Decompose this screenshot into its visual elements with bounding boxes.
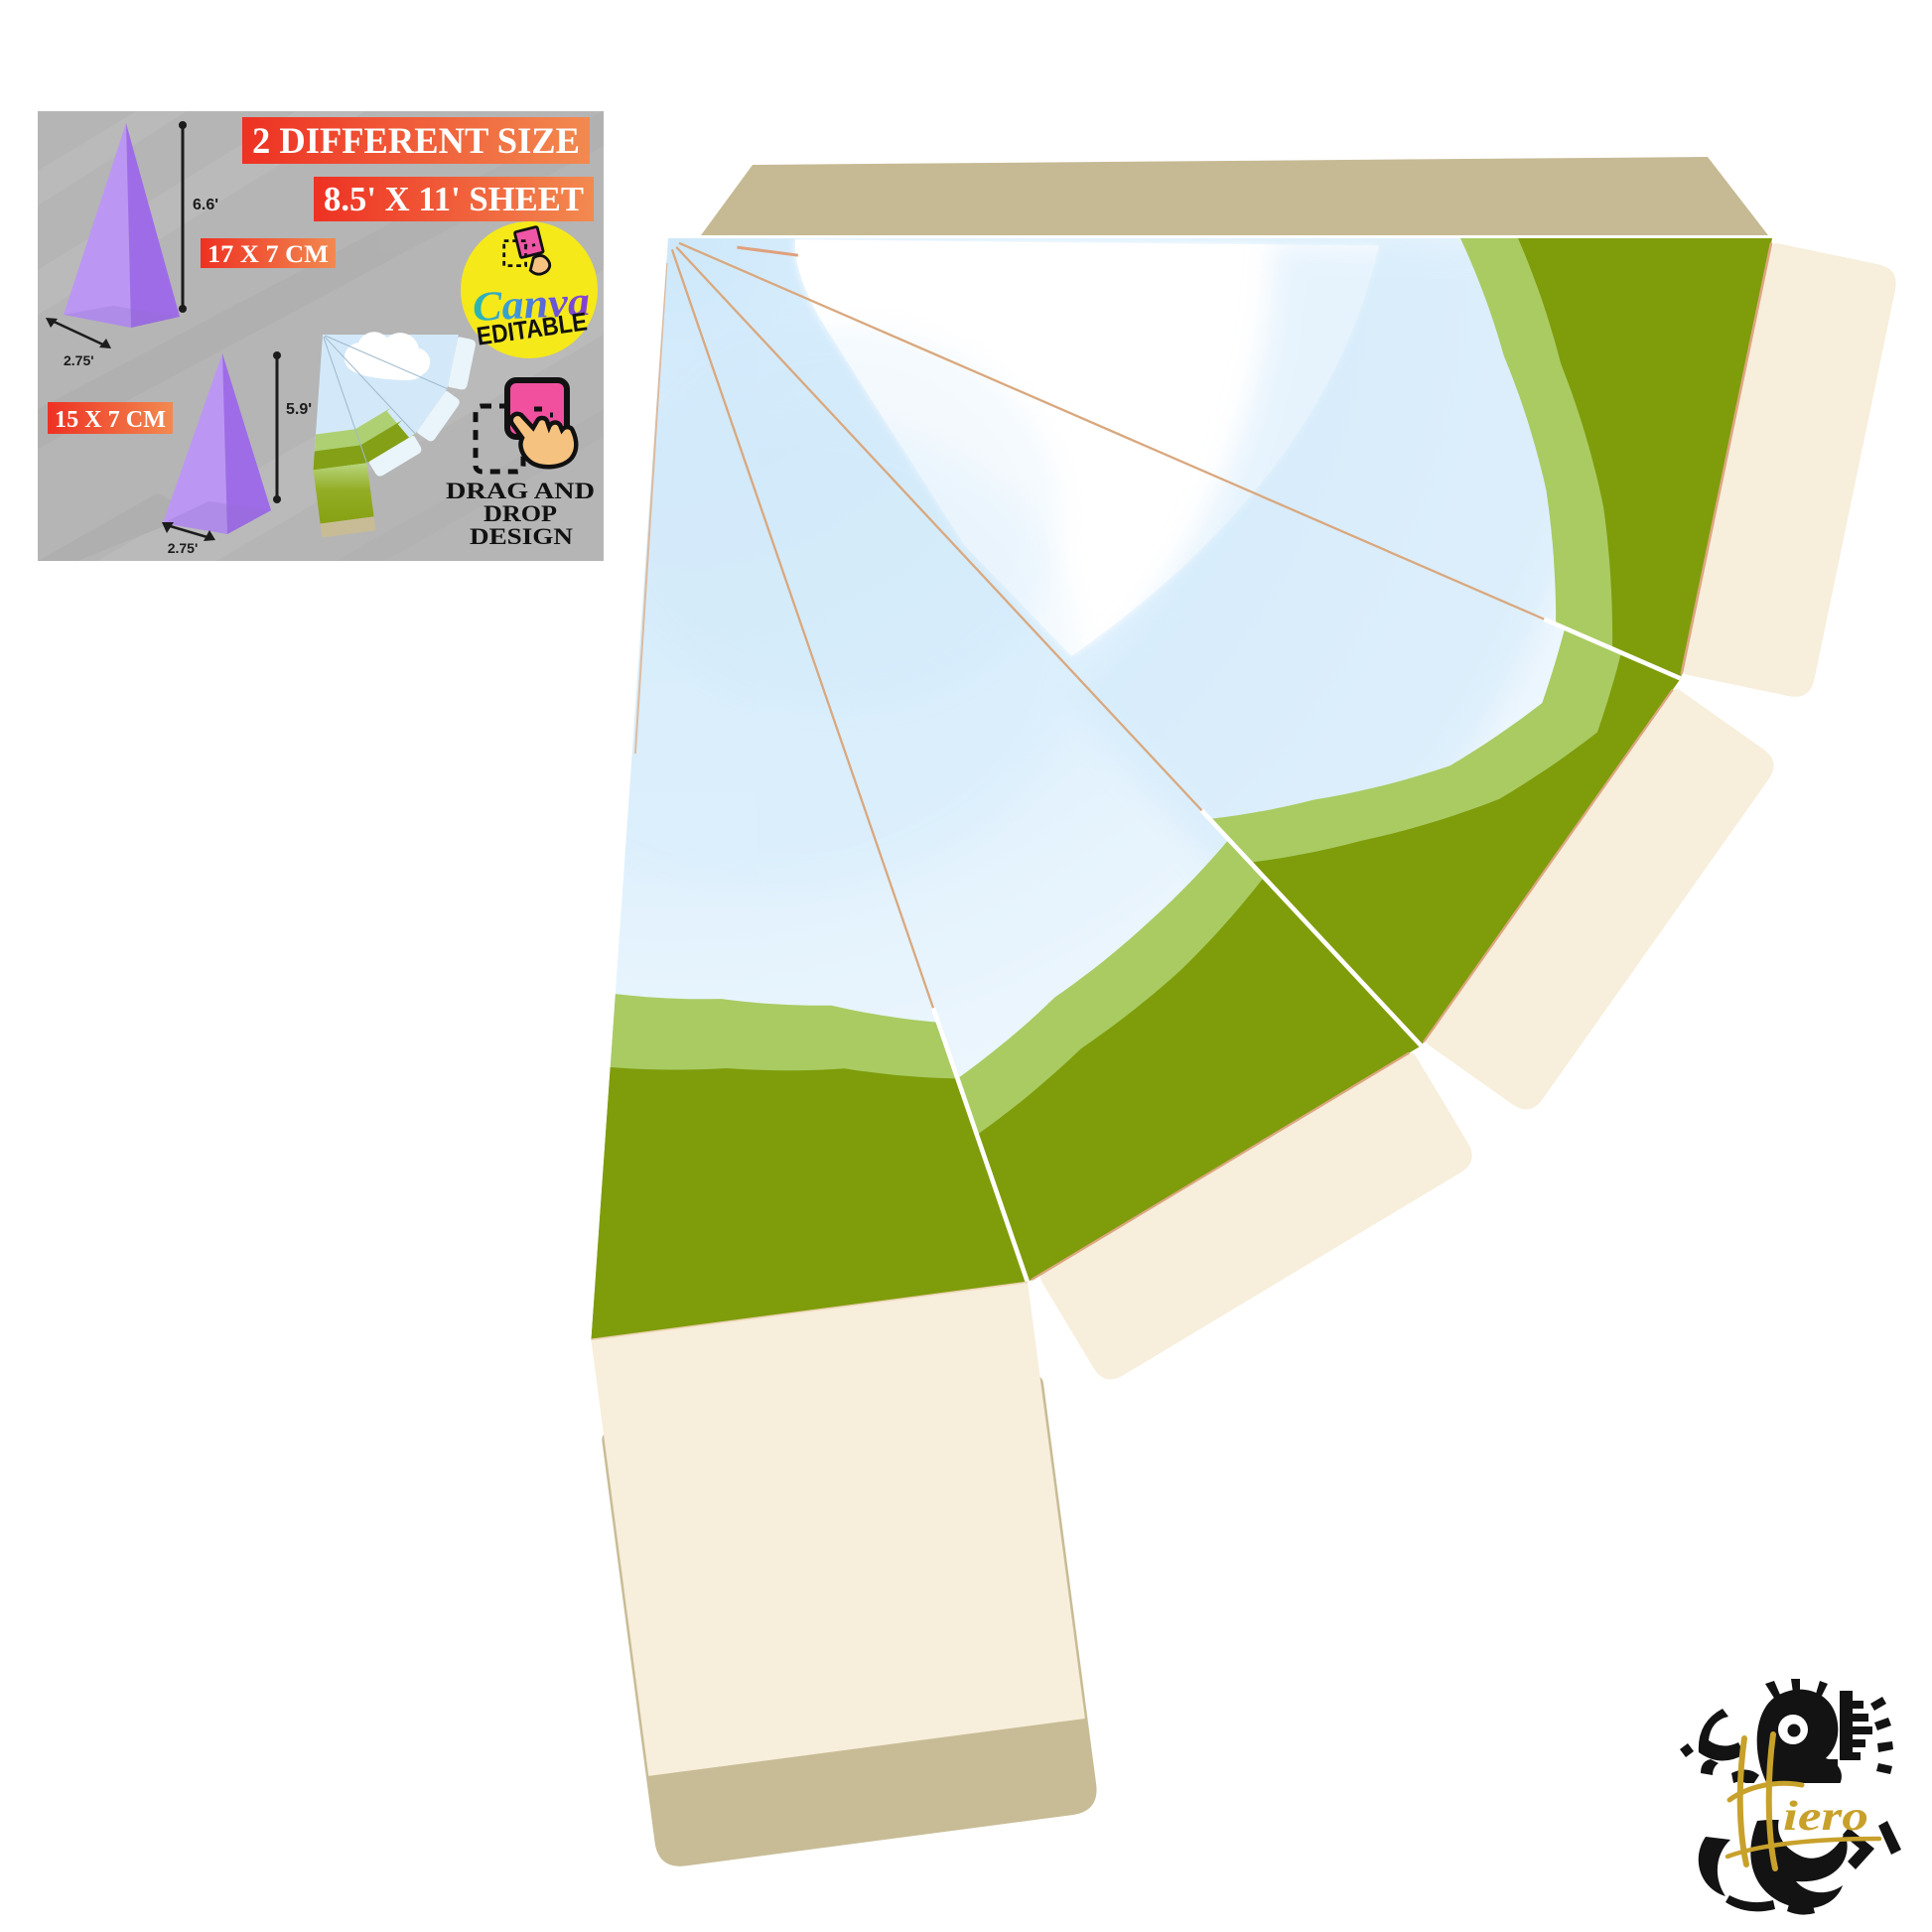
svg-text:17 X 7 CM: 17 X 7 CM <box>207 241 329 268</box>
svg-text:8.5' X 11' SHEET: 8.5' X 11' SHEET <box>324 180 584 218</box>
svg-text:15 X 7 CM: 15 X 7 CM <box>55 407 166 433</box>
svg-text:DRAG AND: DRAG AND <box>446 479 595 503</box>
svg-text:2.75': 2.75' <box>168 540 199 556</box>
svg-text:2.75': 2.75' <box>64 352 94 368</box>
svg-text:2 DIFFERENT SIZE: 2 DIFFERENT SIZE <box>252 121 580 162</box>
svg-text:iero: iero <box>1783 1794 1868 1840</box>
svg-text:6.6': 6.6' <box>193 197 218 213</box>
svg-text:DROP: DROP <box>483 501 557 526</box>
svg-text:DESIGN: DESIGN <box>470 524 573 549</box>
svg-text:5.9': 5.9' <box>286 401 312 418</box>
